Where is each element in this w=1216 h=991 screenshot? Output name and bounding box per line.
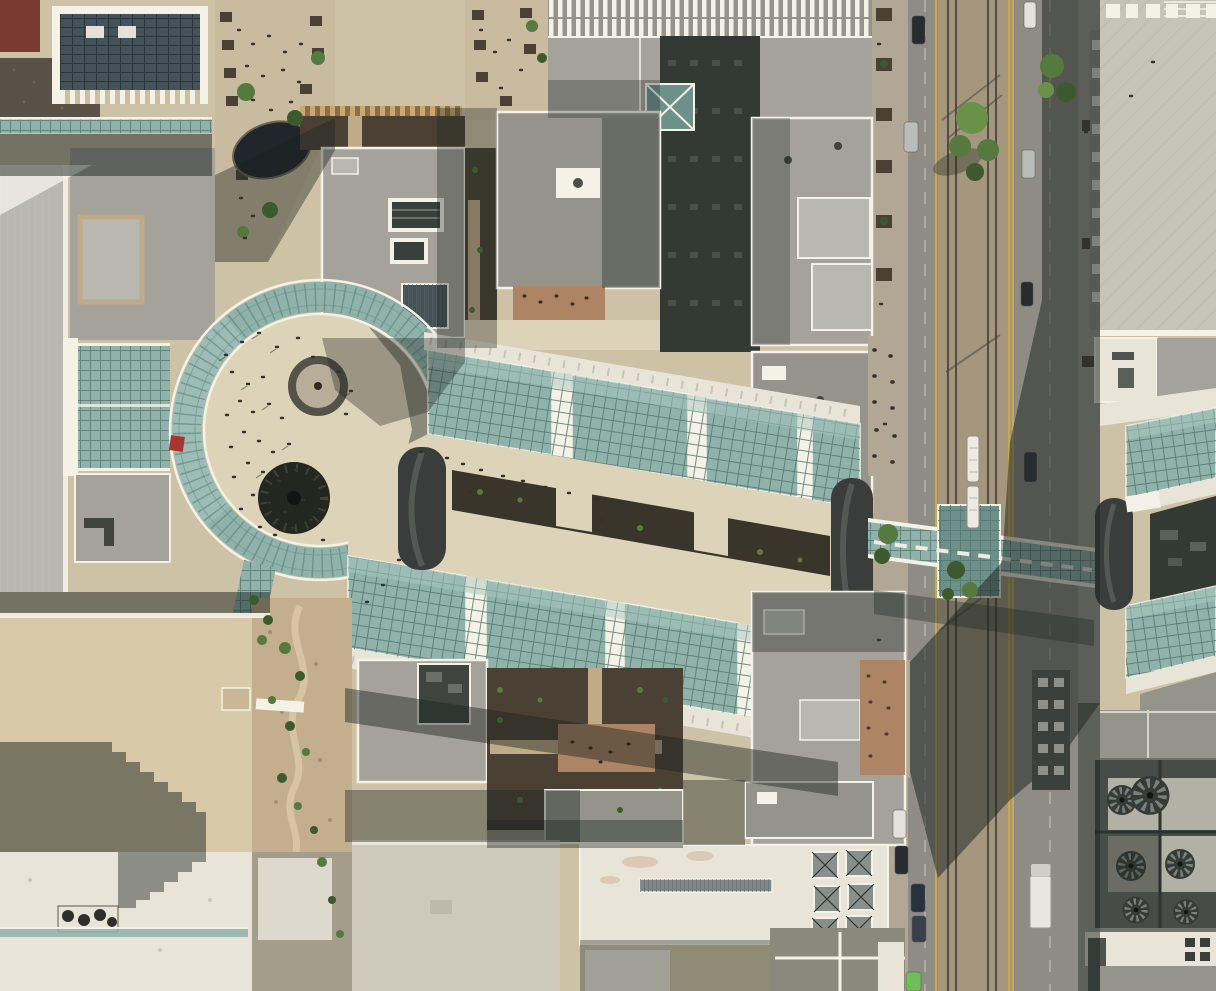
barrel-arch-far-east bbox=[1095, 498, 1133, 610]
tan-framed-roof-inset bbox=[80, 217, 142, 302]
red-roof-building bbox=[0, 0, 40, 52]
pale-roof-bottom bbox=[352, 840, 560, 991]
box-truck bbox=[1030, 864, 1051, 928]
striped-canopy bbox=[60, 90, 200, 104]
light-rail-train bbox=[967, 436, 979, 528]
streetside-cafe-north bbox=[868, 336, 908, 476]
barrel-arch-west bbox=[398, 447, 446, 570]
terracotta-terrace bbox=[513, 286, 605, 320]
glass-canopy-strip bbox=[0, 929, 248, 937]
red-canopy bbox=[169, 435, 185, 452]
solar-panel-building bbox=[52, 6, 208, 104]
aerial-photo bbox=[0, 0, 1216, 991]
window-panel-in-shadow bbox=[1032, 670, 1070, 790]
small-gray-roof bbox=[75, 474, 170, 562]
aerial-photo-viewport bbox=[0, 0, 1216, 991]
green-car bbox=[906, 972, 921, 991]
west-glass-corridor bbox=[63, 338, 170, 476]
courtyard-terrace bbox=[860, 660, 905, 775]
